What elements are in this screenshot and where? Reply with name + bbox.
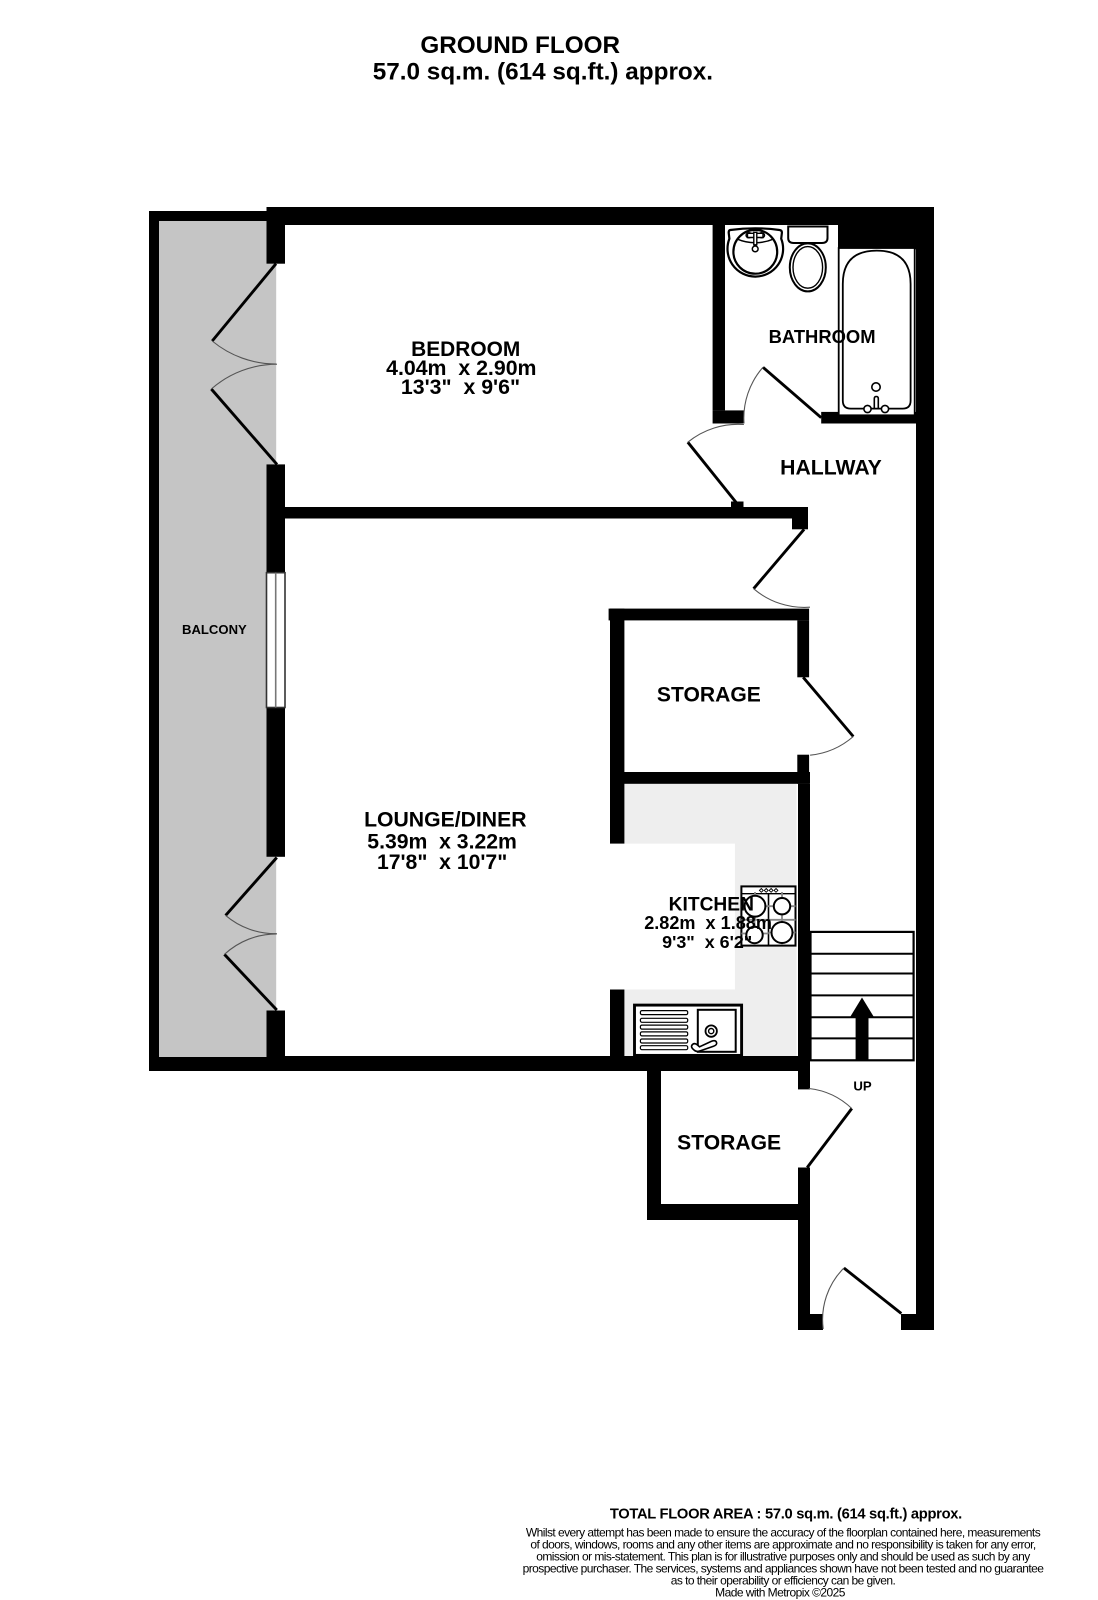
svg-text:13'3" x 9'6": 13'3" x 9'6" [401, 375, 520, 399]
svg-text:STORAGE: STORAGE [657, 683, 761, 706]
svg-text:LOUNGE/DINER: LOUNGE/DINER [364, 809, 526, 832]
svg-text:TOTAL FLOOR AREA : 57.0 sq.m.: TOTAL FLOOR AREA : 57.0 sq.m. (614 sq.ft… [610, 1507, 962, 1523]
svg-text:BALCONY: BALCONY [182, 622, 247, 637]
svg-text:BATHROOM: BATHROOM [769, 326, 876, 347]
svg-text:GROUND FLOOR: GROUND FLOOR [420, 32, 620, 59]
svg-text:9'3" x 6'2": 9'3" x 6'2" [662, 932, 752, 952]
svg-text:HALLWAY: HALLWAY [780, 456, 882, 479]
svg-text:STORAGE: STORAGE [677, 1131, 781, 1154]
svg-text:57.0 sq.m. (614 sq.ft.) approx: 57.0 sq.m. (614 sq.ft.) approx. [373, 58, 713, 85]
svg-text:UP: UP [853, 1079, 872, 1094]
svg-text:Made with Metropix ©2025: Made with Metropix ©2025 [715, 1586, 846, 1600]
svg-text:2.82m x 1.88m: 2.82m x 1.88m [644, 913, 772, 933]
svg-text:17'8" x 10'7": 17'8" x 10'7" [377, 851, 507, 874]
